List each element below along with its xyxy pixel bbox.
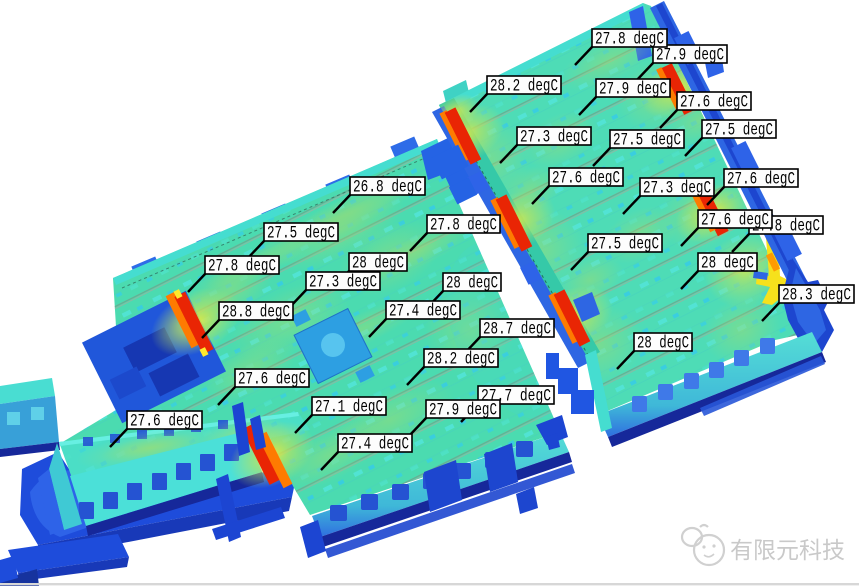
svg-text:27.9 degC: 27.9 degC <box>429 401 497 421</box>
svg-text:27.3 degC: 27.3 degC <box>520 128 588 148</box>
svg-text:27.6 degC: 27.6 degC <box>680 93 748 113</box>
svg-text:27.1 degC: 27.1 degC <box>315 398 383 418</box>
svg-text:27.6 degC: 27.6 degC <box>727 170 795 190</box>
svg-text:28 degC: 28 degC <box>446 274 498 294</box>
svg-text:27.4 degC: 27.4 degC <box>341 435 409 455</box>
svg-text:28.2 degC: 28.2 degC <box>427 350 495 370</box>
svg-text:27.9 degC: 27.9 degC <box>656 46 724 66</box>
svg-text:27.8 degC: 27.8 degC <box>208 257 276 277</box>
svg-text:27.5 degC: 27.5 degC <box>591 235 659 255</box>
svg-text:27.8 degC: 27.8 degC <box>595 30 664 50</box>
svg-text:27.5 degC: 27.5 degC <box>613 131 681 151</box>
svg-text:28 degC: 28 degC <box>701 254 754 274</box>
svg-text:27.6 degC: 27.6 degC <box>701 211 769 231</box>
svg-text:27.6 degC: 27.6 degC <box>238 370 306 390</box>
svg-text:28.3 degC: 28.3 degC <box>782 286 851 306</box>
svg-text:28 degC: 28 degC <box>352 254 404 274</box>
svg-text:27.3 degC: 27.3 degC <box>643 179 711 199</box>
svg-text:27.9 degC: 27.9 degC <box>599 80 667 100</box>
svg-text:28 degC: 28 degC <box>637 334 689 354</box>
svg-text:28.7 degC: 28.7 degC <box>483 320 551 340</box>
svg-text:27.5 degC: 27.5 degC <box>267 224 335 244</box>
svg-text:27.6 degC: 27.6 degC <box>552 169 620 189</box>
svg-text:28.2 degC: 28.2 degC <box>490 77 558 97</box>
svg-text:27.4 degC: 27.4 degC <box>389 302 457 322</box>
svg-text:27.5 degC: 27.5 degC <box>705 121 773 141</box>
svg-text:有限元科技: 有限元科技 <box>730 537 845 563</box>
svg-text:27.3 degC: 27.3 degC <box>309 273 377 293</box>
svg-text:27.6 degC: 27.6 degC <box>130 412 199 432</box>
svg-text:26.8 degC: 26.8 degC <box>353 178 422 198</box>
svg-text:28.8 degC: 28.8 degC <box>222 303 290 323</box>
svg-text:27.8 degC: 27.8 degC <box>430 216 497 236</box>
